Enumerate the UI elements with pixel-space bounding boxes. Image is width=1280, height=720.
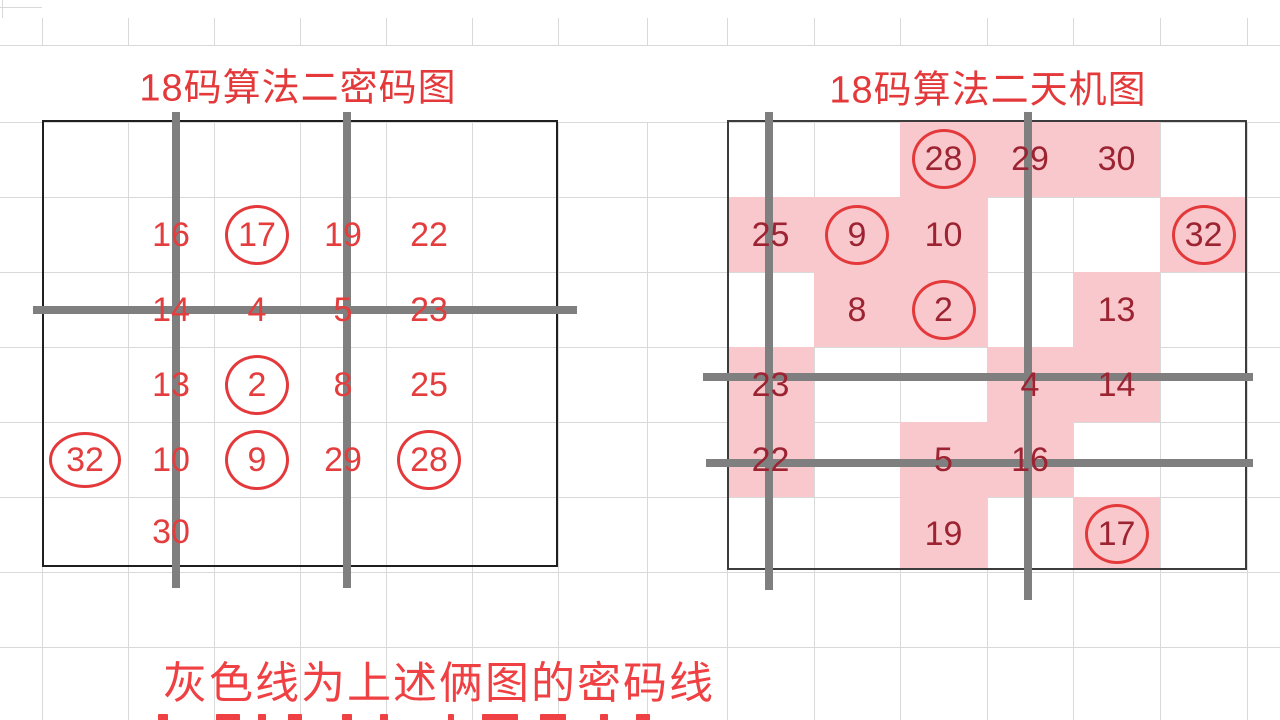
clipped-text-fragment xyxy=(342,714,352,720)
clipped-text-fragment xyxy=(158,714,168,720)
clipped-text-fragment xyxy=(636,714,650,720)
grid-cell-value: 29 xyxy=(1011,142,1049,176)
grid-cell-value: 9 xyxy=(848,218,867,252)
sheet-gridline xyxy=(0,45,1280,46)
grid-cell-value: 32 xyxy=(1185,218,1223,252)
grid-cell-value: 28 xyxy=(410,443,448,477)
clipped-text-fragment xyxy=(380,714,388,720)
grid-cell-value: 28 xyxy=(925,142,963,176)
clipped-text-fragment xyxy=(482,714,518,720)
clipped-text-fragment xyxy=(216,714,240,720)
sheet-gridline xyxy=(386,18,387,45)
sheet-gridline xyxy=(727,18,728,45)
grid-cell-value: 4 xyxy=(248,293,267,327)
sheet-gridline xyxy=(814,18,815,45)
sheet-gridline xyxy=(647,122,648,720)
grid-cell-value: 8 xyxy=(334,368,353,402)
sheet-gridline xyxy=(42,18,43,45)
gray-password-line xyxy=(33,306,577,314)
grid-cell-value: 9 xyxy=(248,443,267,477)
sheet-gridline xyxy=(558,18,559,45)
clipped-text-fragment xyxy=(540,714,566,720)
sheet-gridline xyxy=(987,18,988,45)
grid-cell-value: 5 xyxy=(334,293,353,327)
grid-cell-value: 2 xyxy=(934,293,953,327)
grid-cell-value: 4 xyxy=(1021,368,1040,402)
grid-cell-value: 22 xyxy=(410,218,448,252)
grid-cell-value: 17 xyxy=(238,218,276,252)
grid-cell-value: 10 xyxy=(152,443,190,477)
sheet-gridline xyxy=(214,18,215,45)
sheet-gridline xyxy=(0,572,1280,573)
grid-cell-value: 22 xyxy=(752,443,790,477)
left-grid-box xyxy=(42,120,558,567)
gray-password-line xyxy=(765,112,773,590)
gray-password-line xyxy=(343,112,351,588)
sheet-gridline xyxy=(1247,18,1248,45)
grid-cell-value: 10 xyxy=(925,218,963,252)
sheet-gridline xyxy=(1073,18,1074,45)
footer-caption: 灰色线为上述俩图的密码线 xyxy=(163,647,715,711)
sheet-gridline xyxy=(647,18,648,45)
grid-cell-value: 23 xyxy=(410,293,448,327)
grid-cell-value: 19 xyxy=(925,517,963,551)
sheet-gridline xyxy=(300,18,301,45)
left-grid-title: 18码算法二密码图 xyxy=(139,57,456,112)
grid-cell-value: 13 xyxy=(152,368,190,402)
clipped-text-fragment xyxy=(288,714,302,720)
spreadsheet-canvas: 18码算法二密码图 18码算法二天机图 灰色线为上述俩图的密码线 1617192… xyxy=(0,0,1280,720)
grid-cell-value: 32 xyxy=(66,443,104,477)
grid-cell-value: 13 xyxy=(1098,293,1136,327)
right-grid-box xyxy=(727,120,1247,570)
grid-cell-value: 30 xyxy=(1098,142,1136,176)
right-grid-title: 18码算法二天机图 xyxy=(829,59,1146,114)
clipped-text-fragment xyxy=(258,714,266,720)
sheet-gridline xyxy=(2,0,3,18)
sheet-gridline xyxy=(472,18,473,45)
grid-cell-value: 16 xyxy=(152,218,190,252)
sheet-gridline xyxy=(900,18,901,45)
sheet-gridline xyxy=(128,18,129,45)
grid-cell-value: 25 xyxy=(410,368,448,402)
sheet-gridline xyxy=(0,7,42,8)
grid-cell-value: 23 xyxy=(752,368,790,402)
grid-cell-value: 17 xyxy=(1098,517,1136,551)
grid-cell-value: 14 xyxy=(152,293,190,327)
sheet-gridline xyxy=(1160,18,1161,45)
grid-cell-value: 2 xyxy=(248,368,267,402)
grid-cell-value: 5 xyxy=(934,443,953,477)
gray-password-line xyxy=(1024,112,1032,600)
grid-cell-value: 16 xyxy=(1011,443,1049,477)
grid-cell-value: 25 xyxy=(752,218,790,252)
clipped-text-fragment xyxy=(448,714,454,720)
grid-cell-value: 19 xyxy=(324,218,362,252)
grid-cell-value: 29 xyxy=(324,443,362,477)
grid-cell-value: 8 xyxy=(848,293,867,327)
grid-cell-value: 30 xyxy=(152,515,190,549)
grid-cell-value: 14 xyxy=(1098,368,1136,402)
clipped-text-fragment xyxy=(600,714,608,720)
